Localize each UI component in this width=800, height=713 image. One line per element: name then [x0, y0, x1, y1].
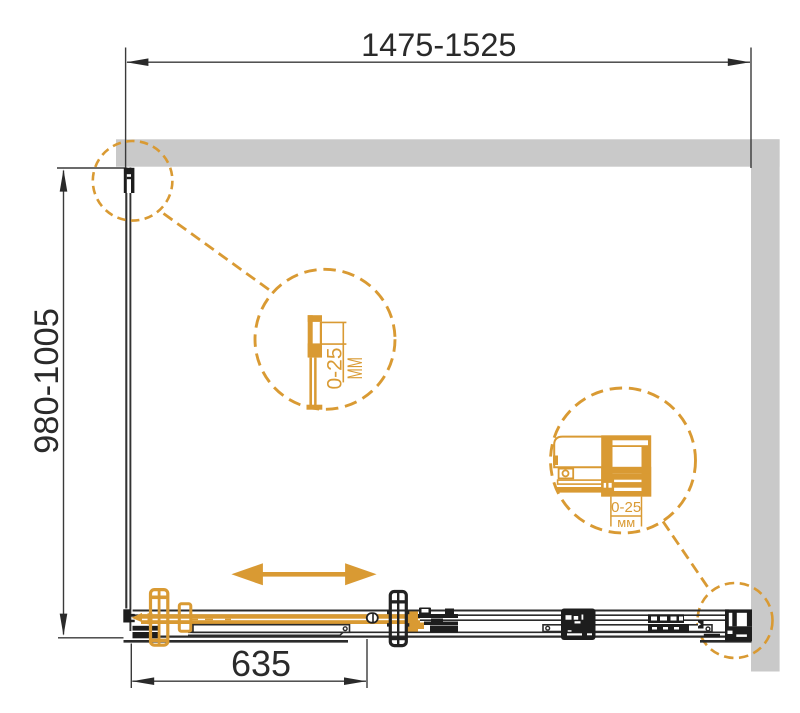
svg-text:ММ: ММ — [343, 357, 367, 379]
svg-text:980-1005: 980-1005 — [28, 308, 66, 454]
svg-text:635: 635 — [231, 643, 291, 684]
svg-text:0-25: 0-25 — [611, 499, 641, 516]
svg-text:1475-1525: 1475-1525 — [361, 27, 516, 63]
svg-text:мм: мм — [617, 515, 635, 530]
